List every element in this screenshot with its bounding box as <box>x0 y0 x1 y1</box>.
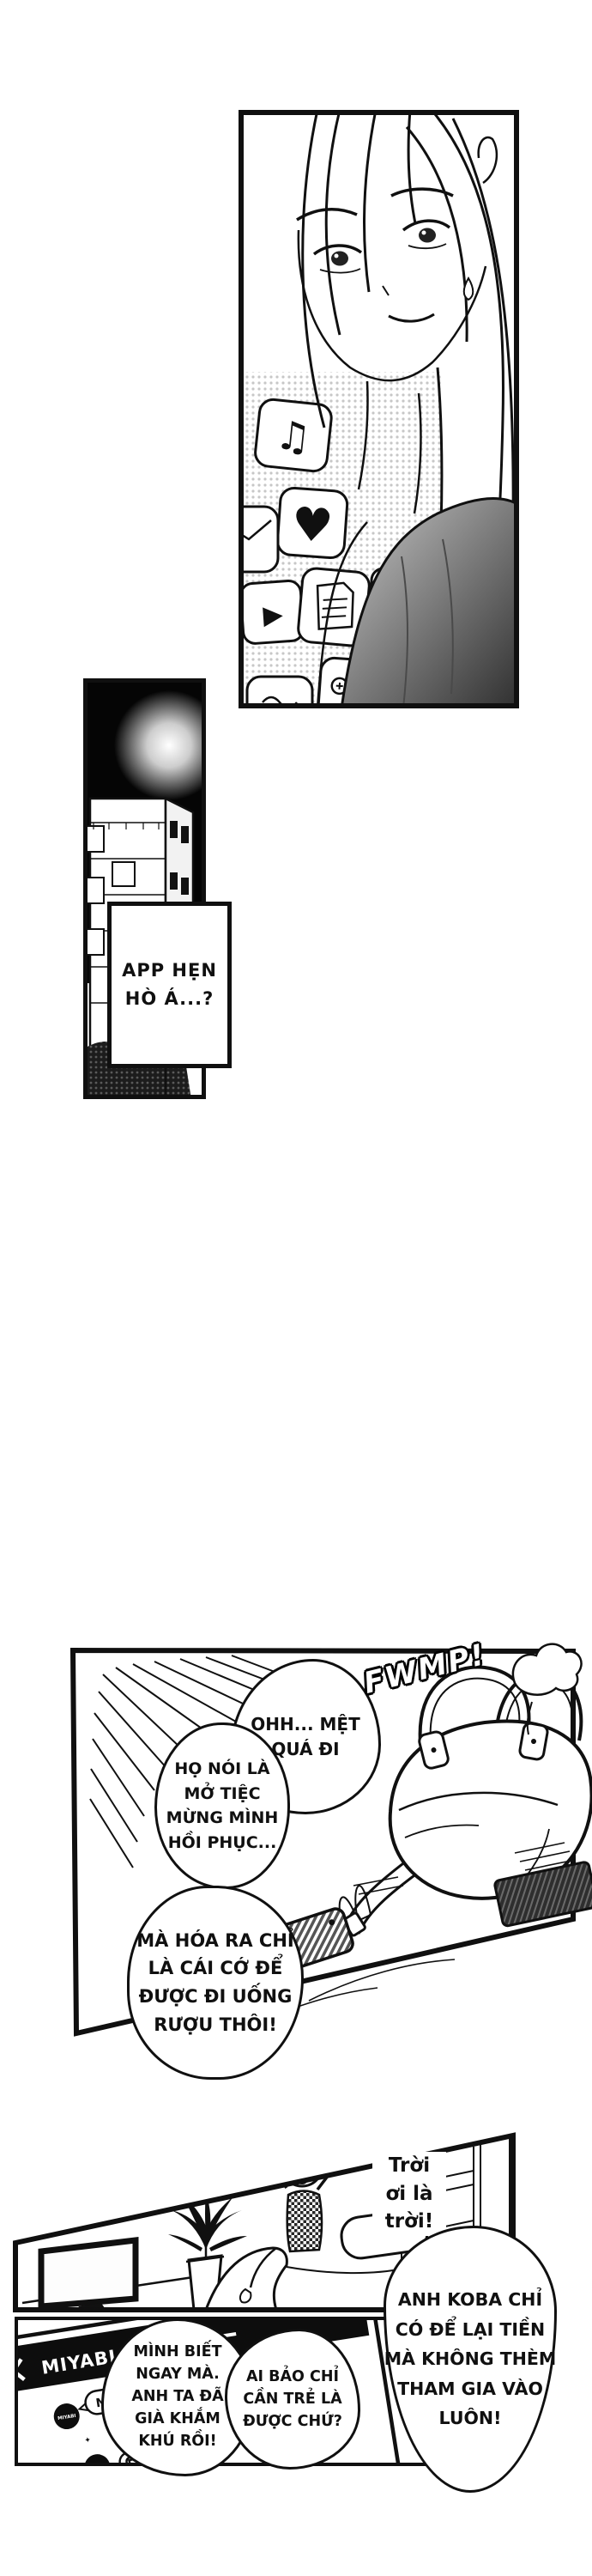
squeezed-eyes <box>290 2162 314 2167</box>
bubble-line: MỞ TIỆC <box>184 1782 260 1807</box>
exclaim-text: Trời ơi là trời! <box>372 2152 446 2236</box>
bubble-line: ANH TA ĐÃ <box>131 2386 223 2409</box>
play-glyph: ▶ <box>263 599 284 631</box>
bubble-line: LÀ CÁI CỚ ĐỂ <box>148 1954 283 1983</box>
left-fist <box>254 2138 269 2153</box>
left-highlight <box>335 254 339 258</box>
right-fist <box>336 2143 351 2158</box>
right-iris <box>419 228 436 243</box>
handle-tab-right <box>519 1722 549 1760</box>
bubble-line: OHH... MỆT <box>251 1712 359 1737</box>
bubble-line: LUÔN! <box>439 2403 502 2433</box>
music-glyph: ♫ <box>273 411 313 461</box>
bubble-line: CẦN TRẺ LÀ <box>243 2388 341 2410</box>
right-highlight <box>422 231 426 235</box>
left-iris <box>331 252 348 266</box>
bubble-line: MÀ KHÔNG THÈM <box>384 2344 557 2373</box>
speech-bubble-ai-bao: AI BẢO CHỈ CẦN TRẺ LÀ ĐƯỢC CHỨ? <box>225 2329 360 2470</box>
bubble-line: GIÀ KHẮM <box>135 2409 220 2431</box>
exclaim-line: trời! <box>372 2208 446 2236</box>
exclaim-line: ơi là <box>372 2180 446 2208</box>
bubble-line: KHÚ RỒI! <box>138 2431 216 2453</box>
bubble-line: MÌNH BIẾT <box>133 2342 221 2364</box>
bubble-line: NGAY MÀ. <box>136 2364 220 2386</box>
play-icon: ▶ <box>240 580 305 645</box>
heart-icon: ♥ <box>276 487 347 558</box>
hair-spikes <box>276 2129 328 2148</box>
bubble-line: CÓ ĐỂ LẠI TIỀN <box>396 2315 545 2344</box>
caption-box: APP HẸN HÒ Á...? <box>107 902 232 1068</box>
bubble-line: HỒI PHỤC... <box>168 1831 277 1856</box>
left-arm <box>263 2150 287 2188</box>
bubble-line: RƯỢU THÔI! <box>154 2011 277 2039</box>
manga-page: ♫ ♥ ▶ <box>0 0 592 2576</box>
speech-bubble-ho-noi: HỌ NÓI LÀ MỞ TIỆC MỪNG MÌNH HỒI PHỤC... <box>154 1722 290 1889</box>
exclaim-line: Trời <box>372 2152 446 2180</box>
panel-portrait: ♫ ♥ ▶ <box>239 110 519 708</box>
bubble-line: THAM GIA VÀO <box>397 2374 543 2403</box>
bubble-line: MỪNG MÌNH <box>166 1806 279 1831</box>
moon-icon: ☾ <box>94 2452 106 2463</box>
bubble-line: ĐƯỢC CHỨ? <box>243 2410 342 2433</box>
bubble-line: ANH KOBA CHỈ <box>398 2285 542 2314</box>
bangs <box>285 2148 319 2158</box>
checkered-top <box>287 2191 322 2252</box>
bubble-line: MÀ HÓA RA CHỈ <box>136 1927 293 1955</box>
mail-icon <box>239 507 278 572</box>
speech-bubble-ma-hoa: MÀ HÓA RA CHỈ LÀ CÁI CỚ ĐỂ ĐƯỢC ĐI UỐNG … <box>127 1886 304 2080</box>
bubble-line: QUÁ ĐI <box>271 1737 339 1762</box>
caption-line: APP HẸN <box>122 957 217 985</box>
bubble-line: AI BẢO CHỈ <box>246 2366 339 2388</box>
bubble-line: HỌ NÓI LÀ <box>174 1757 269 1782</box>
caption-line: HÒ Á...? <box>125 985 214 1013</box>
heart-glyph: ♥ <box>290 496 335 553</box>
motion-marks <box>245 2128 359 2157</box>
bubble-line: ĐƯỢC ĐI UỐNG <box>139 1983 293 2011</box>
